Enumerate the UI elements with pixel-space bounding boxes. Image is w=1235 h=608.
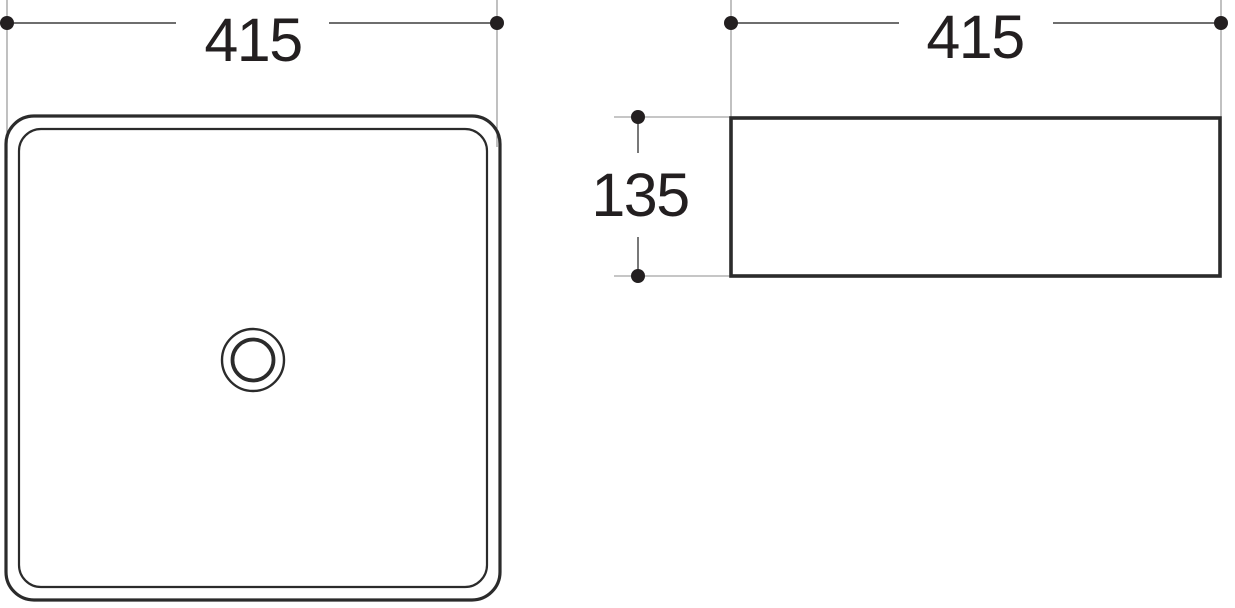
dim-label-side-view-width: 415 — [926, 3, 1023, 71]
dim-dot-top-view-right — [490, 16, 504, 30]
dim-dot-side-view-bottom — [631, 269, 645, 283]
basin-inner-rim — [19, 129, 487, 587]
dim-dot-side-view-right — [1214, 16, 1228, 30]
side-view-outline — [731, 118, 1220, 276]
dim-dot-side-view-left — [724, 16, 738, 30]
basin-side-view — [731, 118, 1220, 276]
dimension-lines — [0, 23, 1221, 271]
basin-outer-outline — [6, 116, 500, 600]
basin-dimension-drawing: 415 415 135 — [0, 0, 1235, 608]
basin-top-view — [6, 116, 500, 600]
dim-dot-top-view-left — [0, 16, 14, 30]
dim-label-top-view-width: 415 — [204, 6, 301, 74]
drain-inner-circle — [233, 340, 274, 381]
dim-dot-side-view-top — [631, 110, 645, 124]
dimension-dots — [0, 16, 1228, 283]
technical-drawing: 415 415 135 — [0, 0, 1235, 608]
extension-lines — [7, 0, 1221, 276]
dim-label-side-view-height: 135 — [591, 161, 688, 229]
